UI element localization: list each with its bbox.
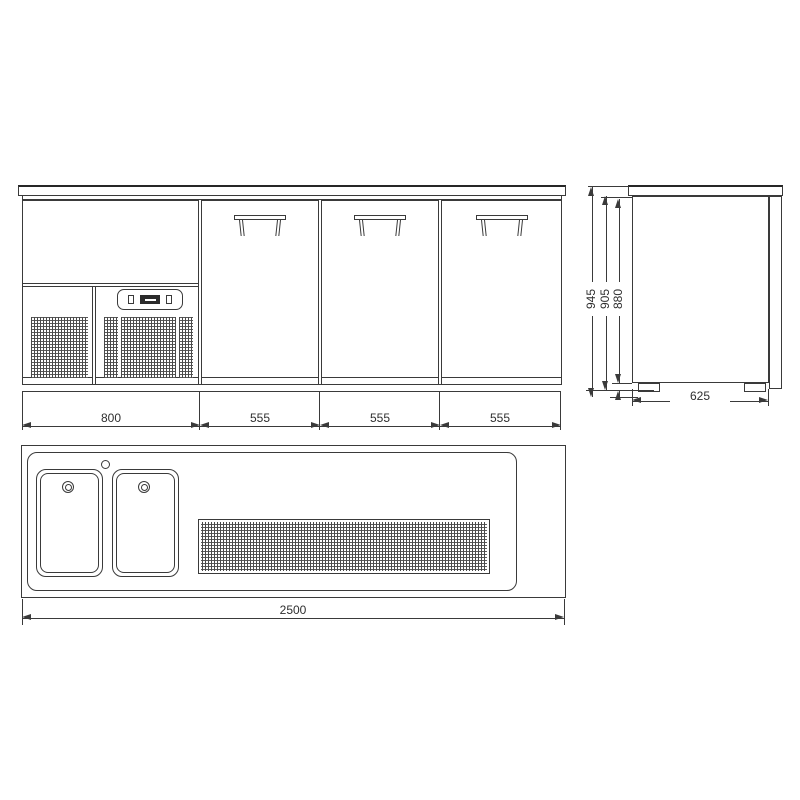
drip-tray-grille: [198, 519, 490, 574]
dimension-arrow: [320, 422, 329, 428]
dim-label-height-880: 880: [611, 282, 626, 316]
countertop-front: [18, 185, 566, 196]
compartment-divider-vertical: [92, 287, 96, 384]
ventilation-grille-right-a: [104, 317, 118, 378]
section-divider-2: [318, 200, 322, 384]
dimension-arrow: [311, 422, 320, 428]
dimension-arrow: [759, 397, 768, 403]
dimension-arrow: [22, 614, 31, 620]
dimension-arrow: [440, 422, 449, 428]
dimension-arrow: [602, 381, 608, 390]
control-button-left-icon: [128, 295, 134, 304]
ventilation-grille-left: [31, 317, 88, 378]
drain-hole-icon-1: [62, 481, 74, 493]
dim-label-front-800: 800: [89, 411, 133, 425]
control-panel: [117, 289, 183, 310]
section-divider-3: [438, 200, 442, 384]
dimension-arrow: [555, 614, 564, 620]
section-divider-1: [198, 200, 202, 384]
tap-hole-icon: [101, 460, 110, 469]
dimension-arrow: [615, 374, 621, 383]
cabinet-body-side: [632, 196, 769, 383]
dimension-arrow: [200, 422, 209, 428]
dimension-arrow: [588, 187, 594, 196]
control-button-right-icon: [166, 295, 172, 304]
ventilation-grille-right-b: [121, 317, 176, 378]
dimension-arrow: [632, 397, 641, 403]
dimension-arrow: [615, 199, 621, 208]
dimension-arrow: [552, 422, 561, 428]
dimension-arrow: [191, 422, 200, 428]
dimension-arrow: [588, 388, 594, 397]
dimension-arrow: [431, 422, 440, 428]
back-panel-side: [769, 196, 782, 389]
dim-label-top-2500: 2500: [263, 603, 323, 617]
compartment-divider-horizontal: [23, 283, 198, 287]
ventilation-grille-right-c: [179, 317, 193, 378]
countertop-side: [628, 185, 783, 196]
dim-label-front-555a: 555: [238, 411, 282, 425]
dim-label-depth-625: 625: [670, 389, 730, 403]
drain-hole-icon-2: [138, 481, 150, 493]
technical-drawing-canvas: 800 555 555 555: [0, 0, 800, 800]
dim-label-height-945: 945: [584, 282, 599, 316]
dimension-arrow: [22, 422, 31, 428]
control-panel-display-icon: [140, 295, 160, 304]
dim-label-front-555b: 555: [358, 411, 402, 425]
adjustable-foot-right: [744, 383, 766, 392]
dimension-arrow: [602, 196, 608, 205]
dimension-arrow: [615, 391, 621, 400]
dim-label-front-555c: 555: [478, 411, 522, 425]
